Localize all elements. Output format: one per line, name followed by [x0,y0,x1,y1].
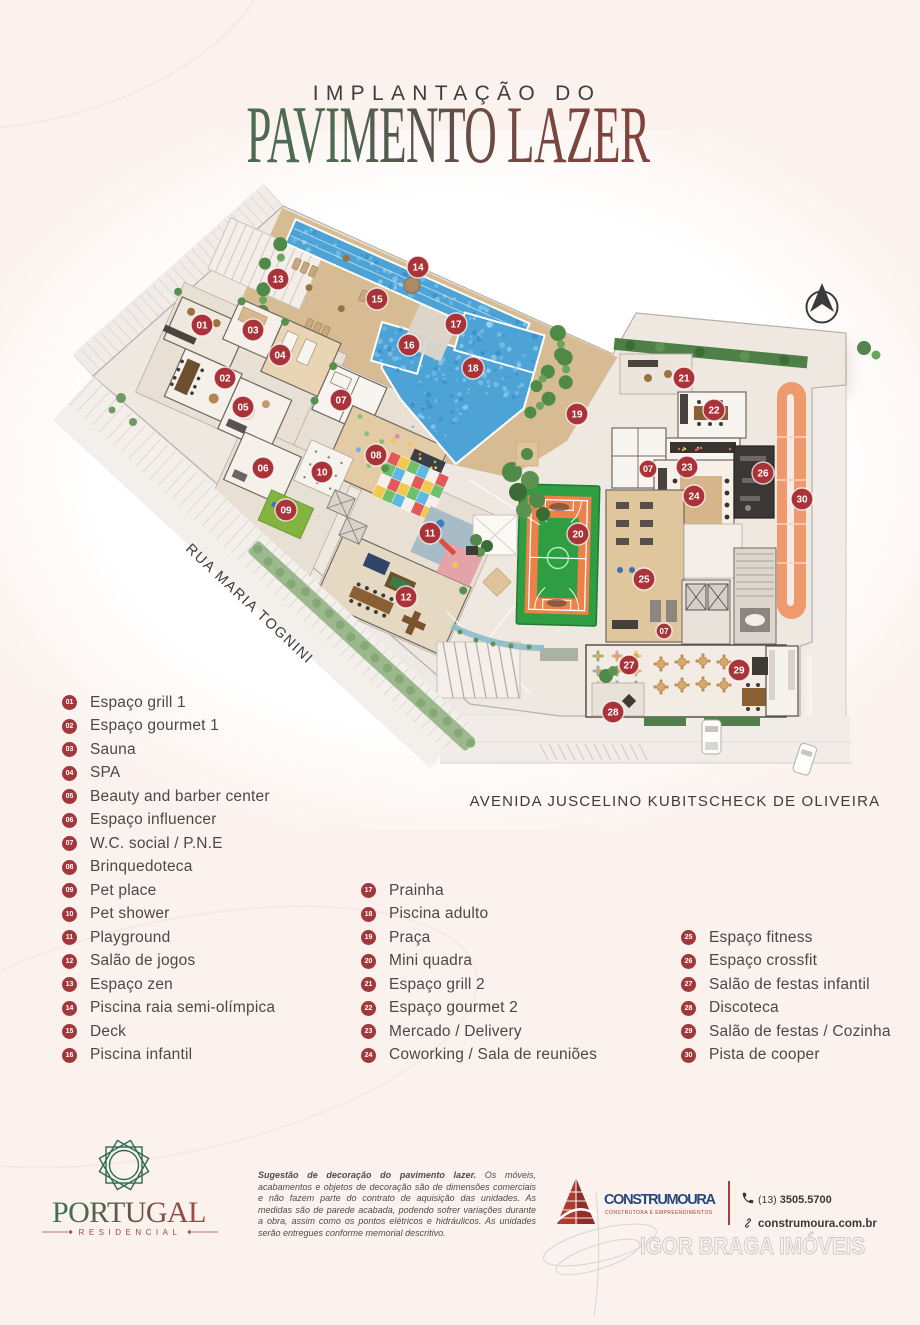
svg-text:14: 14 [412,263,424,274]
svg-text:30: 30 [796,495,808,506]
svg-text:RESIDENCIAL: RESIDENCIAL [79,1228,182,1237]
svg-text:07: 07 [660,627,669,636]
svg-text:23: 23 [681,463,693,474]
svg-text:01: 01 [196,321,208,332]
svg-text:13: 13 [272,275,284,286]
svg-text:21: 21 [678,374,690,385]
svg-text:07: 07 [335,396,347,407]
svg-text:10: 10 [316,468,328,479]
svg-text:27: 27 [623,661,635,672]
svg-text:25: 25 [638,575,650,586]
svg-text:17: 17 [450,320,462,331]
svg-text:09: 09 [280,506,292,517]
svg-text:05: 05 [237,403,249,414]
svg-text:22: 22 [708,406,720,417]
svg-text:06: 06 [257,464,269,475]
svg-text:04: 04 [274,351,286,362]
svg-text:29: 29 [733,666,745,677]
svg-text:12: 12 [400,593,412,604]
svg-text:20: 20 [572,530,584,541]
svg-text:26: 26 [757,469,769,480]
svg-text:24: 24 [688,492,700,503]
svg-text:03: 03 [247,326,259,337]
svg-text:11: 11 [425,529,436,540]
svg-text:16: 16 [403,341,415,352]
svg-text:19: 19 [571,410,583,421]
svg-text:15: 15 [371,295,383,306]
svg-text:07: 07 [643,464,653,474]
svg-text:28: 28 [607,708,619,719]
svg-text:08: 08 [370,451,382,462]
svg-text:PORTUGAL: PORTUGAL [52,1196,208,1229]
svg-text:02: 02 [219,374,231,385]
svg-text:18: 18 [467,364,479,375]
